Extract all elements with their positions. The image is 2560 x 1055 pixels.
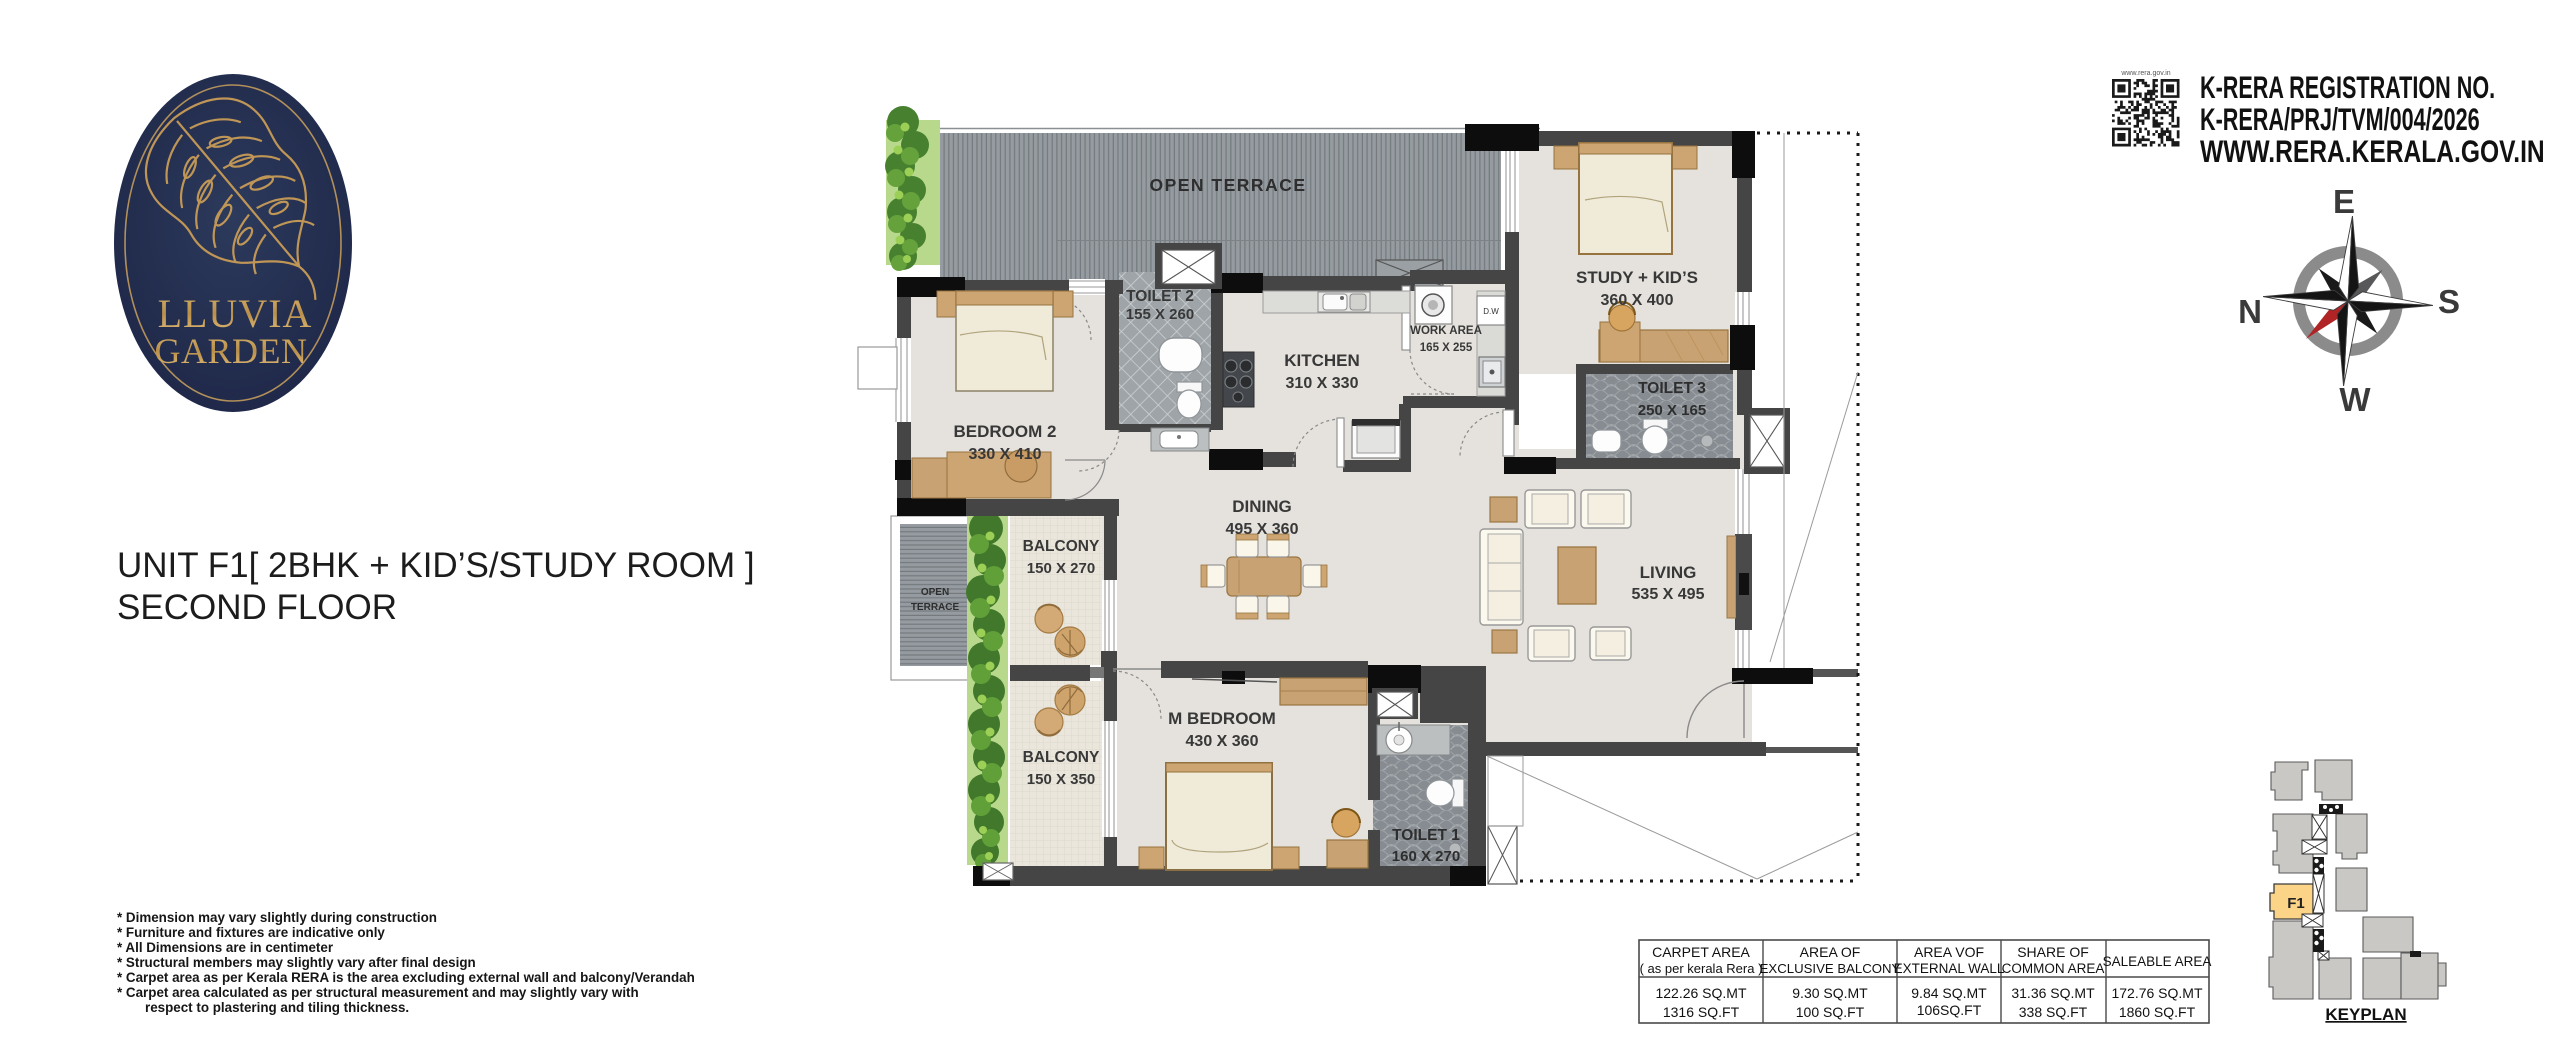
svg-text:SALEABLE AREA: SALEABLE AREA bbox=[2103, 954, 2212, 969]
svg-text:9.30 SQ.MT: 9.30 SQ.MT bbox=[1792, 985, 1868, 1001]
svg-text:160 X 270: 160 X 270 bbox=[1392, 848, 1460, 865]
svg-text:M BEDROOM: M BEDROOM bbox=[1168, 709, 1276, 728]
svg-text:AREA VOF: AREA VOF bbox=[1914, 944, 1984, 960]
svg-text:EXCLUSIVE BALCONY: EXCLUSIVE BALCONY bbox=[1760, 961, 1901, 976]
svg-text:LLUVIA: LLUVIA bbox=[158, 291, 313, 336]
svg-text:SHARE OF: SHARE OF bbox=[2017, 944, 2089, 960]
svg-text:E: E bbox=[2333, 183, 2355, 220]
svg-text:DINING: DINING bbox=[1232, 497, 1292, 516]
svg-text:W: W bbox=[2339, 381, 2371, 418]
svg-text:S: S bbox=[2438, 283, 2460, 320]
svg-text:BALCONY: BALCONY bbox=[1023, 749, 1100, 766]
svg-text:* Carpet area calculated as pe: * Carpet area calculated as per structur… bbox=[117, 985, 639, 1000]
svg-text:150 X 270: 150 X 270 bbox=[1027, 560, 1095, 577]
svg-text:TERRACE: TERRACE bbox=[911, 602, 960, 613]
svg-text:www.rera.gov.in: www.rera.gov.in bbox=[2120, 70, 2170, 77]
svg-text:OPEN: OPEN bbox=[921, 587, 949, 598]
svg-text:* Dimension may vary slightly: * Dimension may vary slightly during con… bbox=[117, 910, 437, 925]
svg-text:( as per kerala Rera ): ( as per kerala Rera ) bbox=[1640, 961, 1763, 976]
svg-text:SECOND FLOOR: SECOND FLOOR bbox=[117, 588, 397, 627]
svg-text:K-RERA/PRJ/TVM/004/2026: K-RERA/PRJ/TVM/004/2026 bbox=[2200, 102, 2480, 137]
svg-text:EXTERNAL WALL: EXTERNAL WALL bbox=[1894, 961, 2005, 976]
svg-text:* Structural members may sligh: * Structural members may slightly vary a… bbox=[117, 955, 476, 970]
svg-text:100 SQ.FT: 100 SQ.FT bbox=[1796, 1004, 1865, 1020]
svg-text:TOILET 1: TOILET 1 bbox=[1392, 827, 1460, 844]
svg-text:CARPET AREA: CARPET AREA bbox=[1652, 944, 1750, 960]
svg-text:* Carpet area as per Kerala RE: * Carpet area as per Kerala RERA is the … bbox=[117, 970, 695, 985]
svg-text:KITCHEN: KITCHEN bbox=[1284, 351, 1360, 370]
svg-text:respect to plastering and tili: respect to plastering and tiling thickne… bbox=[145, 1000, 409, 1015]
svg-text:310 X 330: 310 X 330 bbox=[1286, 375, 1359, 392]
svg-text:WWW.RERA.KERALA.GOV.IN: WWW.RERA.KERALA.GOV.IN bbox=[2200, 134, 2545, 168]
svg-text:WORK AREA: WORK AREA bbox=[1410, 325, 1482, 337]
svg-text:338 SQ.FT: 338 SQ.FT bbox=[2019, 1004, 2088, 1020]
svg-text:STUDY + KID’S: STUDY + KID’S bbox=[1576, 268, 1698, 287]
svg-text:N: N bbox=[2238, 293, 2262, 330]
svg-text:1860 SQ.FT: 1860 SQ.FT bbox=[2119, 1004, 2196, 1020]
svg-text:* Furniture and fixtures are i: * Furniture and fixtures are indicative … bbox=[117, 925, 385, 940]
svg-text:OPEN TERRACE: OPEN TERRACE bbox=[1149, 175, 1306, 195]
svg-text:106SQ.FT: 106SQ.FT bbox=[1917, 1002, 1982, 1018]
svg-text:UNIT F1[ 2BHK + KID’S/STUDY RO: UNIT F1[ 2BHK + KID’S/STUDY ROOM ] bbox=[117, 546, 755, 585]
svg-text:430 X 360: 430 X 360 bbox=[1186, 733, 1259, 750]
svg-text:150 X 350: 150 X 350 bbox=[1027, 771, 1095, 788]
svg-text:155 X 260: 155 X 260 bbox=[1126, 306, 1194, 323]
svg-text:KEYPLAN: KEYPLAN bbox=[2325, 1005, 2406, 1024]
svg-text:F1: F1 bbox=[2287, 895, 2305, 912]
svg-text:172.76 SQ.MT: 172.76 SQ.MT bbox=[2111, 985, 2202, 1001]
svg-text:AREA OF: AREA OF bbox=[1800, 944, 1861, 960]
svg-text:535 X 495: 535 X 495 bbox=[1632, 586, 1705, 603]
svg-text:GARDEN: GARDEN bbox=[155, 331, 308, 371]
svg-text:COMMON AREA: COMMON AREA bbox=[2002, 961, 2105, 976]
svg-text:TOILET 3: TOILET 3 bbox=[1638, 380, 1706, 397]
svg-text:495 X 360: 495 X 360 bbox=[1226, 521, 1299, 538]
svg-text:122.26 SQ.MT: 122.26 SQ.MT bbox=[1655, 985, 1746, 1001]
svg-text:360 X 400: 360 X 400 bbox=[1601, 292, 1674, 309]
svg-text:1316 SQ.FT: 1316 SQ.FT bbox=[1663, 1004, 1740, 1020]
svg-text:D.W: D.W bbox=[1483, 307, 1499, 316]
svg-text:LIVING: LIVING bbox=[1640, 563, 1697, 582]
svg-text:9.84 SQ.MT: 9.84 SQ.MT bbox=[1911, 985, 1987, 1001]
svg-text:* All Dimensions are in centim: * All Dimensions are in centimeter bbox=[117, 940, 334, 955]
svg-text:250 X 165: 250 X 165 bbox=[1638, 402, 1706, 419]
svg-text:330 X 410: 330 X 410 bbox=[969, 446, 1042, 463]
svg-text:TOILET 2: TOILET 2 bbox=[1126, 288, 1194, 305]
svg-text:K-RERA REGISTRATION NO.: K-RERA REGISTRATION NO. bbox=[2200, 70, 2495, 105]
svg-text:BALCONY: BALCONY bbox=[1023, 538, 1100, 555]
svg-text:165 X 255: 165 X 255 bbox=[1420, 342, 1473, 354]
svg-text:BEDROOM 2: BEDROOM 2 bbox=[954, 422, 1057, 441]
svg-text:31.36 SQ.MT: 31.36 SQ.MT bbox=[2011, 985, 2095, 1001]
